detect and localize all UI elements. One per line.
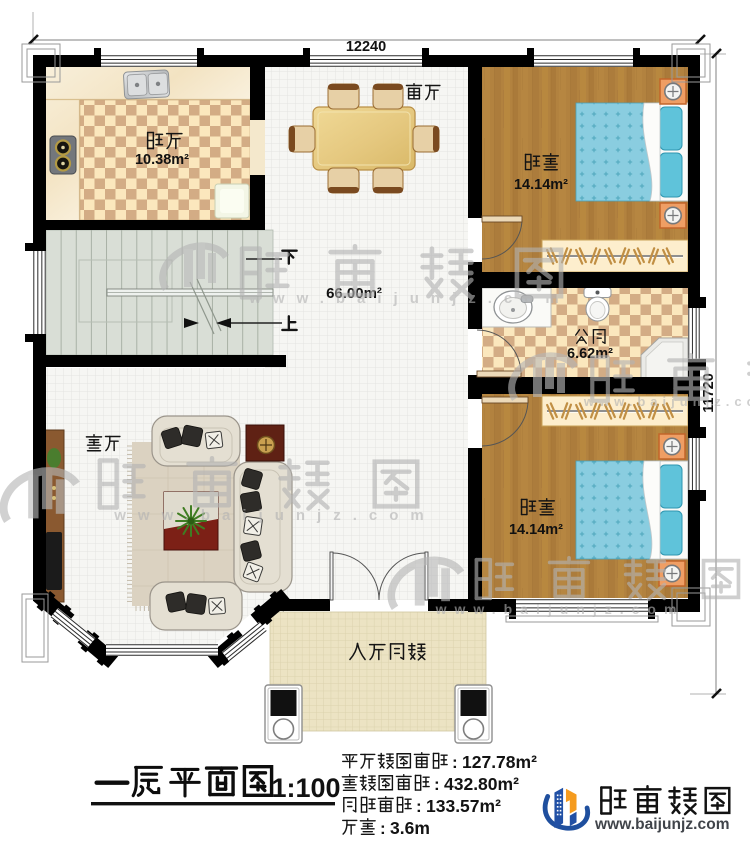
svg-text::: :: [380, 819, 386, 838]
svg-text::: :: [434, 775, 440, 794]
svg-text:432.80m²: 432.80m²: [444, 774, 519, 794]
svg-text:14.14m²: 14.14m²: [509, 522, 563, 538]
svg-text:www.baijunjz.com: www.baijunjz.com: [435, 601, 685, 617]
svg-text:3.6m: 3.6m: [390, 818, 430, 838]
svg-text:127.78m²: 127.78m²: [462, 752, 537, 772]
svg-text:www.baijunjz.com: www.baijunjz.com: [113, 507, 435, 524]
svg-text:12240: 12240: [346, 39, 386, 55]
svg-text::: :: [452, 753, 458, 772]
svg-text:www.baijunjz.com: www.baijunjz.com: [594, 816, 731, 833]
svg-text:14.14m²: 14.14m²: [514, 177, 568, 193]
svg-text:www.baijunjz.com: www.baijunjz.com: [248, 290, 570, 307]
svg-text:www.baijunjz.com: www.baijunjz.com: [583, 394, 750, 409]
svg-text:1:100: 1:100: [271, 773, 340, 803]
svg-text:10.38m²: 10.38m²: [135, 152, 189, 168]
svg-text:133.57m²: 133.57m²: [426, 796, 501, 816]
svg-text::: :: [416, 797, 422, 816]
